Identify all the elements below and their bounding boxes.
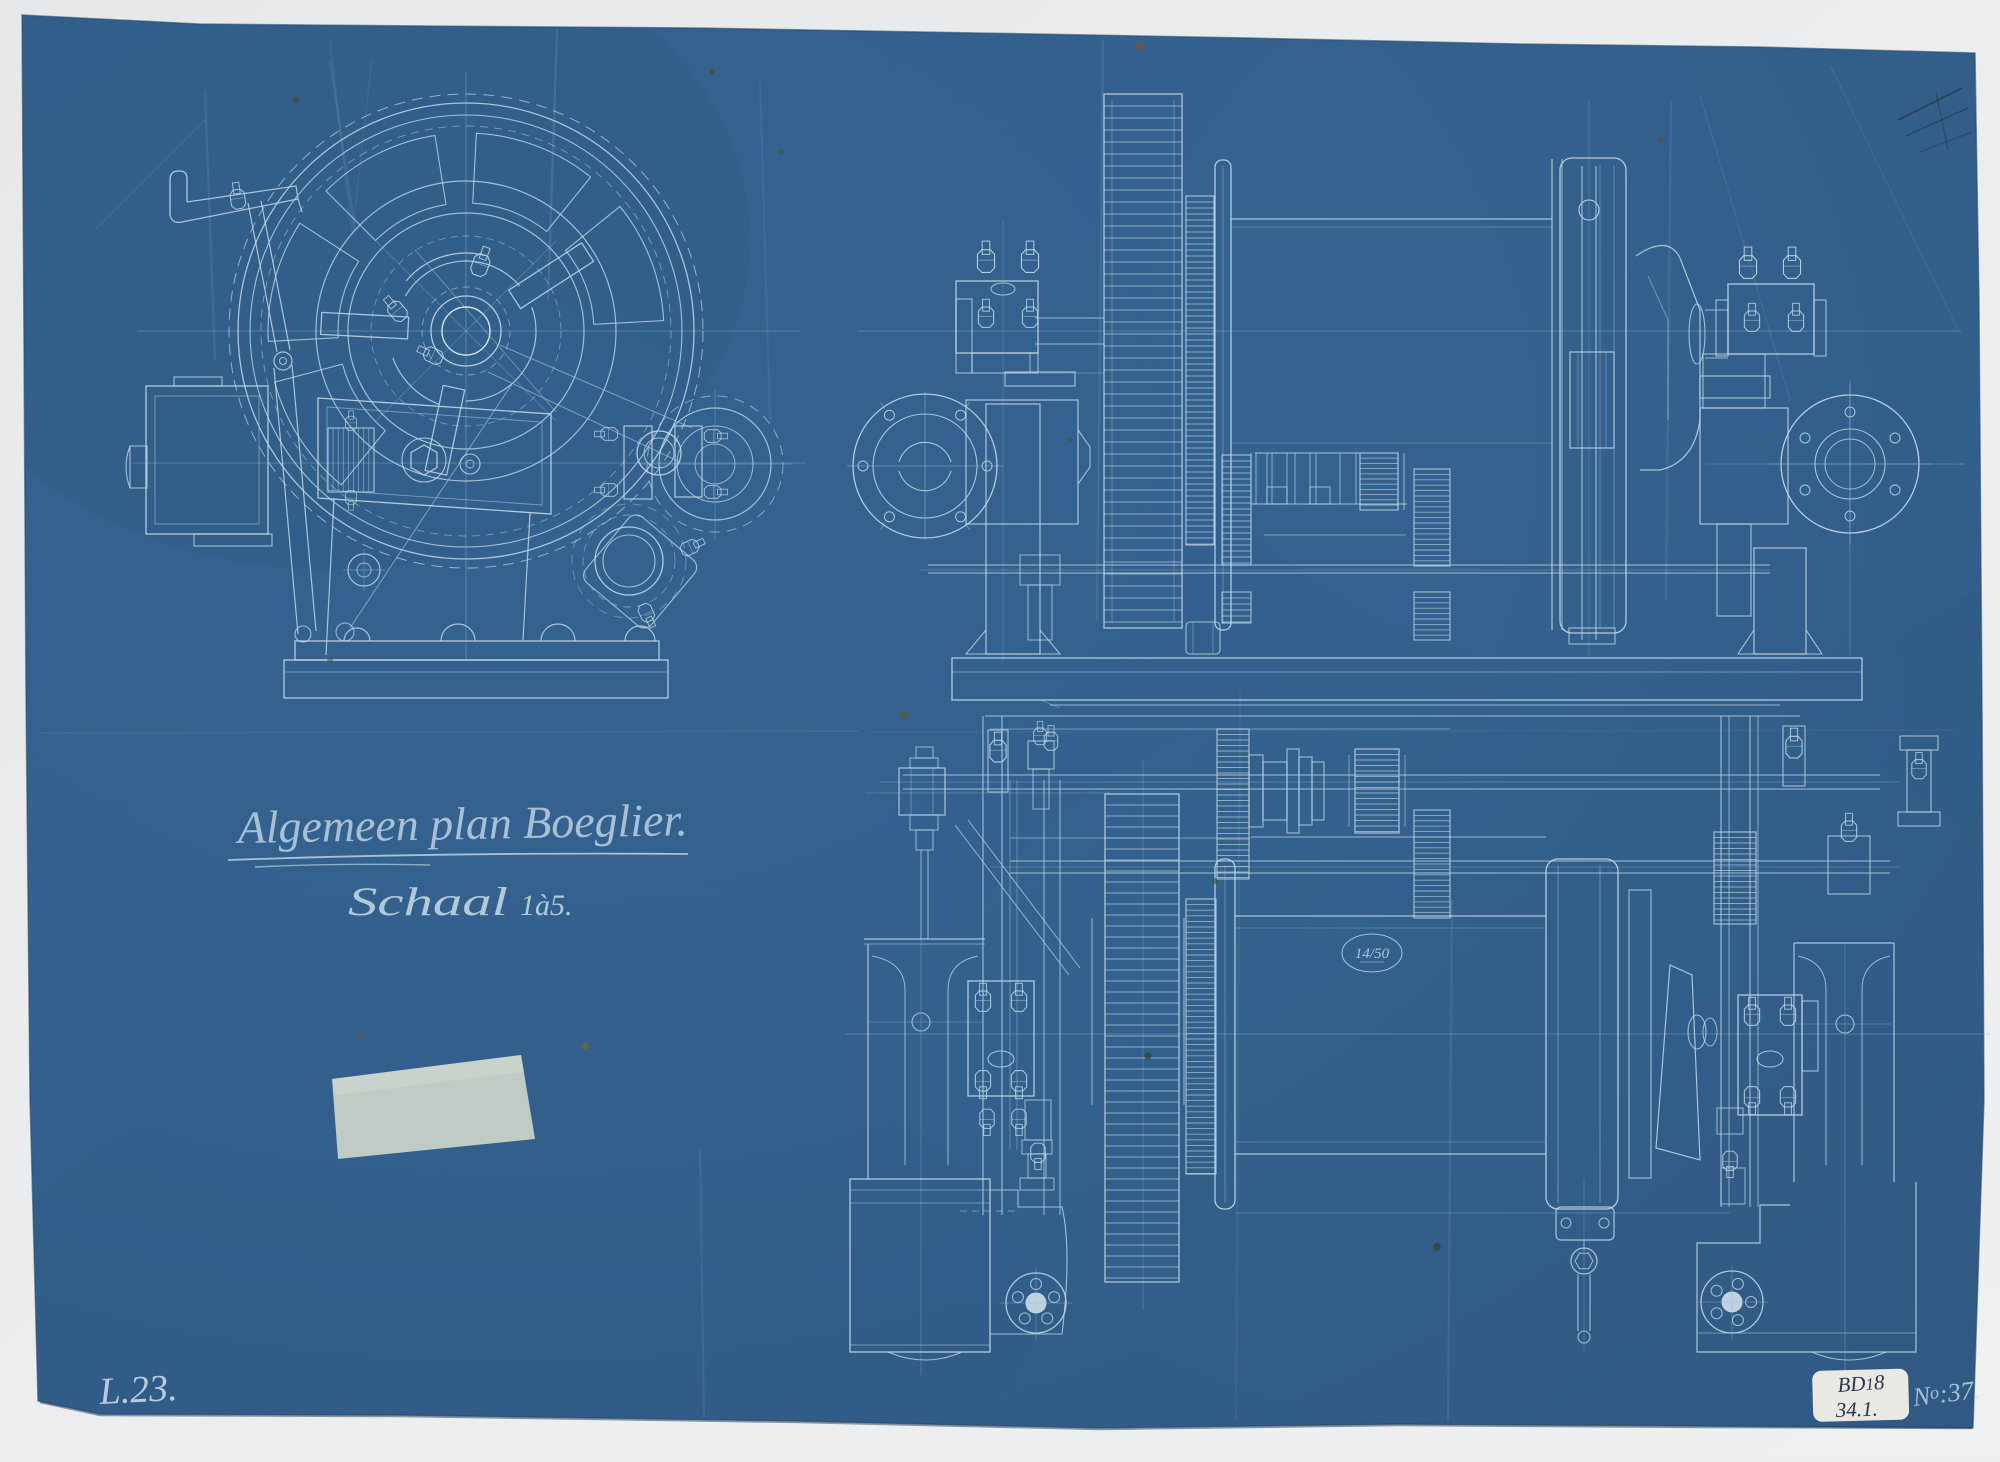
svg-text:BD18: BD18: [1837, 1370, 1886, 1397]
svg-text:14/50: 14/50: [1355, 946, 1390, 962]
svg-text:Schaal: Schaal: [348, 879, 508, 924]
svg-text:1à5.: 1à5.: [520, 889, 573, 922]
svg-text:34.1.: 34.1.: [1834, 1397, 1878, 1422]
svg-text:L.23.: L.23.: [97, 1367, 178, 1413]
svg-text:Algemeen plan Boeglier.: Algemeen plan Boeglier.: [234, 794, 688, 853]
